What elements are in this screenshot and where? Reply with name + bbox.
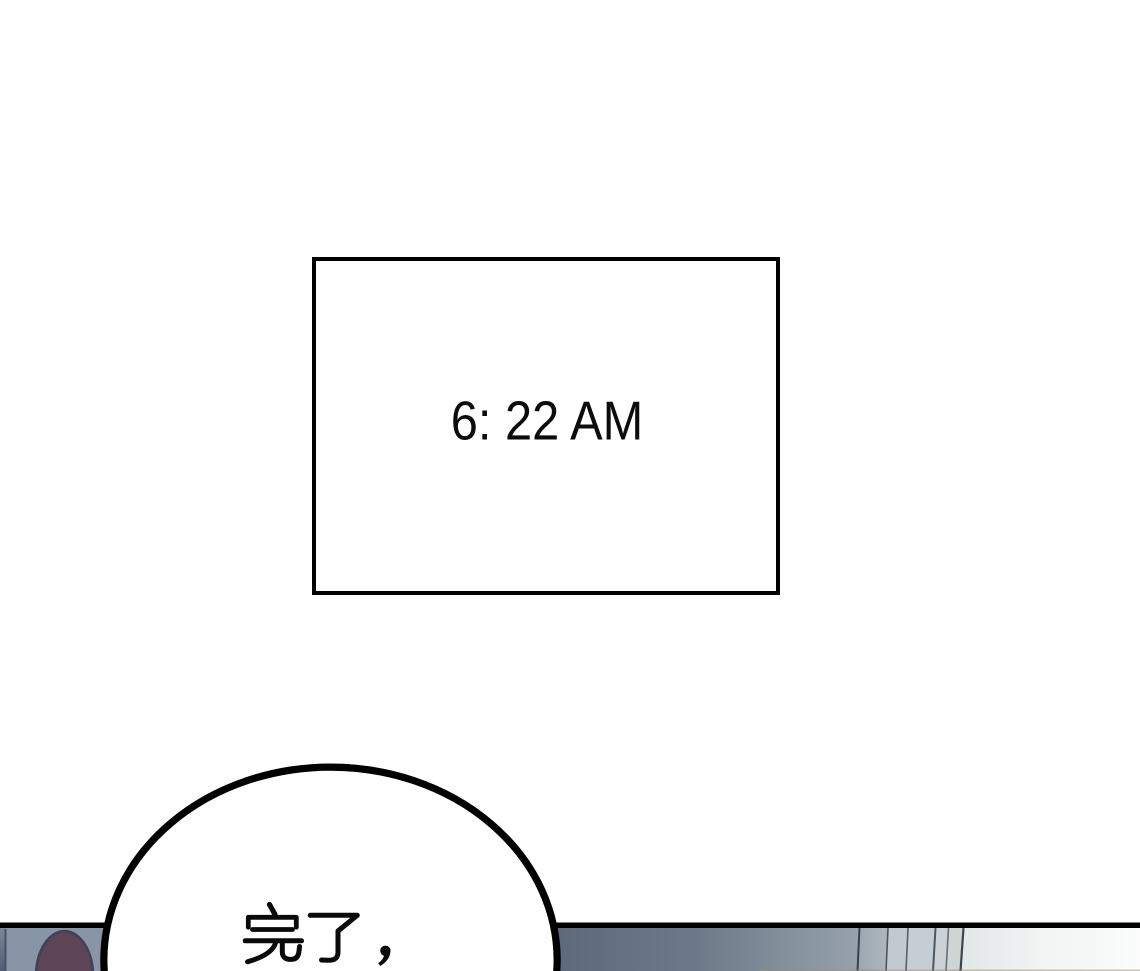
svg-text:6: 22 AM: 6: 22 AM	[451, 391, 644, 452]
